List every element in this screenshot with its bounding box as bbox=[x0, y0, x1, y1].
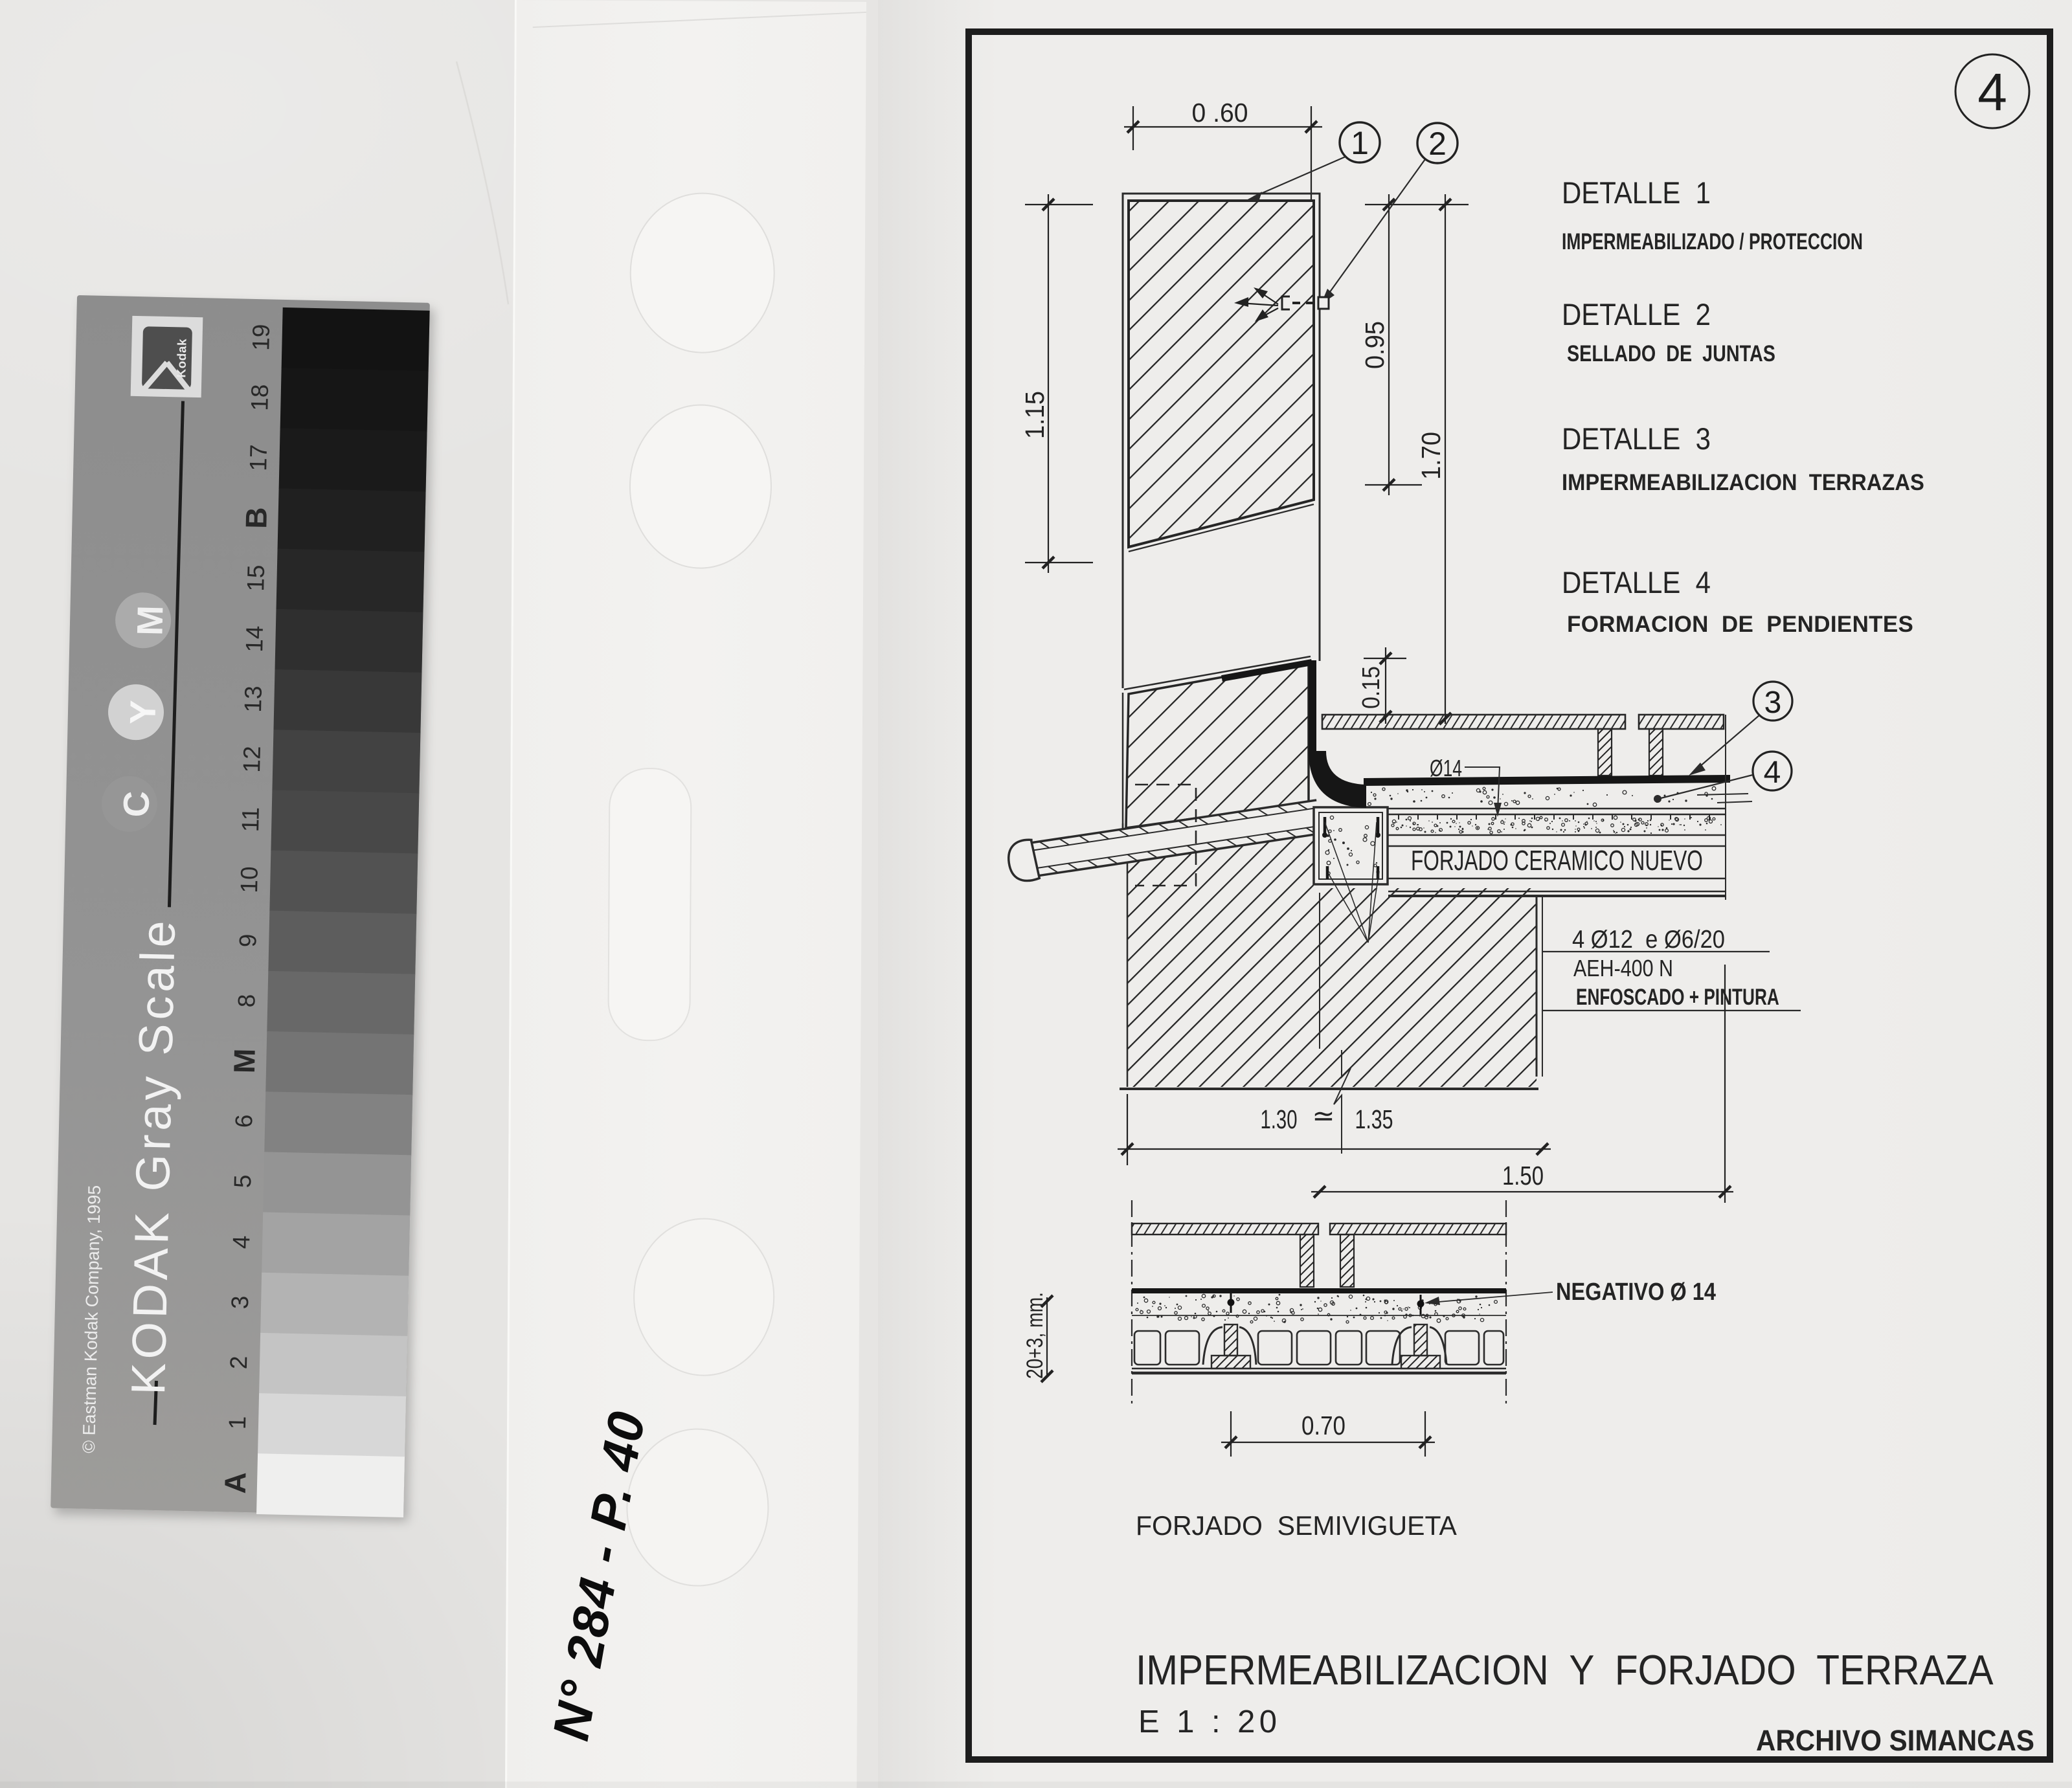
svg-text:M: M bbox=[227, 1048, 262, 1073]
svg-text:FORJADO CERAMICO NUEVO: FORJADO CERAMICO NUEVO bbox=[1411, 845, 1703, 877]
svg-text:14: 14 bbox=[241, 625, 268, 653]
svg-text:4 Ø12 e Ø6/20: 4 Ø12 e Ø6/20 bbox=[1572, 925, 1725, 953]
svg-text:IMPERMEABILIZACION TERRAZAS: IMPERMEABILIZACION TERRAZAS bbox=[1562, 470, 1924, 495]
svg-text:9: 9 bbox=[234, 933, 261, 947]
svg-text:Ø14: Ø14 bbox=[1430, 755, 1462, 781]
svg-text:19: 19 bbox=[247, 324, 275, 351]
svg-text:13: 13 bbox=[240, 686, 267, 713]
svg-text:4: 4 bbox=[228, 1235, 254, 1249]
svg-text:0.95: 0.95 bbox=[1360, 321, 1390, 369]
svg-text:17: 17 bbox=[245, 444, 272, 471]
svg-text:18: 18 bbox=[246, 384, 273, 411]
svg-text:KODAK Gray Scale: KODAK Gray Scale bbox=[121, 917, 185, 1396]
svg-text:≃: ≃ bbox=[1312, 1101, 1334, 1131]
svg-text:4: 4 bbox=[1977, 63, 2007, 122]
svg-text:2: 2 bbox=[1428, 126, 1447, 162]
svg-text:IMPERMEABILIZACION Y FORJADO: IMPERMEABILIZACION Y FORJADO TERRAZA bbox=[1136, 1647, 1994, 1693]
svg-text:IMPERMEABILIZADO / PROTECCION: IMPERMEABILIZADO / PROTECCION bbox=[1562, 229, 1863, 254]
svg-text:0.15: 0.15 bbox=[1357, 666, 1384, 709]
svg-text:10: 10 bbox=[236, 866, 263, 893]
svg-text:AEH-400 N: AEH-400 N bbox=[1573, 956, 1673, 982]
svg-text:1.70: 1.70 bbox=[1417, 432, 1447, 480]
svg-text:Y: Y bbox=[122, 700, 163, 725]
svg-text:12: 12 bbox=[238, 746, 265, 773]
svg-text:DETALLE 1: DETALLE 1 bbox=[1562, 177, 1711, 210]
svg-text:SELLADO DE JUNTAS: SELLADO DE JUNTAS bbox=[1567, 341, 1775, 366]
svg-text:3: 3 bbox=[227, 1295, 253, 1309]
svg-text:E 1 : 20: E 1 : 20 bbox=[1138, 1704, 1281, 1739]
svg-text:ARCHIVO SIMANCAS: ARCHIVO SIMANCAS bbox=[1756, 1725, 2034, 1758]
svg-text:6: 6 bbox=[231, 1114, 257, 1128]
svg-text:B: B bbox=[239, 507, 273, 529]
svg-text:ENFOSCADO + PINTURA: ENFOSCADO + PINTURA bbox=[1576, 984, 1779, 1010]
svg-text:20+3, mm.: 20+3, mm. bbox=[1022, 1292, 1048, 1379]
svg-text:1.15: 1.15 bbox=[1020, 391, 1050, 439]
svg-text:DETALLE 3: DETALLE 3 bbox=[1562, 423, 1711, 456]
svg-text:1: 1 bbox=[224, 1416, 251, 1429]
svg-text:M: M bbox=[129, 605, 170, 636]
svg-text:1.35: 1.35 bbox=[1355, 1104, 1393, 1134]
svg-text:8: 8 bbox=[233, 994, 260, 1007]
svg-text:0.70: 0.70 bbox=[1301, 1411, 1346, 1440]
svg-text:DETALLE 4: DETALLE 4 bbox=[1562, 566, 1711, 600]
svg-text:4: 4 bbox=[1764, 755, 1781, 790]
svg-text:FORJADO SEMIVIGUETA: FORJADO SEMIVIGUETA bbox=[1136, 1510, 1457, 1541]
svg-text:Kodak: Kodak bbox=[175, 339, 189, 378]
svg-text:NEGATIVO Ø 14: NEGATIVO Ø 14 bbox=[1556, 1279, 1716, 1306]
svg-text:11: 11 bbox=[237, 807, 264, 832]
svg-text:1.50: 1.50 bbox=[1502, 1160, 1544, 1190]
svg-text:5: 5 bbox=[229, 1174, 256, 1188]
svg-text:FORMACION DE PENDIENTES: FORMACION DE PENDIENTES bbox=[1567, 612, 1913, 637]
svg-text:15: 15 bbox=[242, 564, 269, 592]
svg-text:C: C bbox=[115, 790, 157, 818]
svg-text:3: 3 bbox=[1764, 686, 1782, 720]
svg-text:DETALLE 2: DETALLE 2 bbox=[1562, 298, 1711, 332]
svg-text:A: A bbox=[218, 1472, 253, 1494]
svg-text:1.30: 1.30 bbox=[1260, 1104, 1297, 1134]
svg-text:0 .60: 0 .60 bbox=[1192, 98, 1248, 128]
svg-text:2: 2 bbox=[225, 1356, 252, 1369]
svg-text:1: 1 bbox=[1351, 125, 1369, 161]
